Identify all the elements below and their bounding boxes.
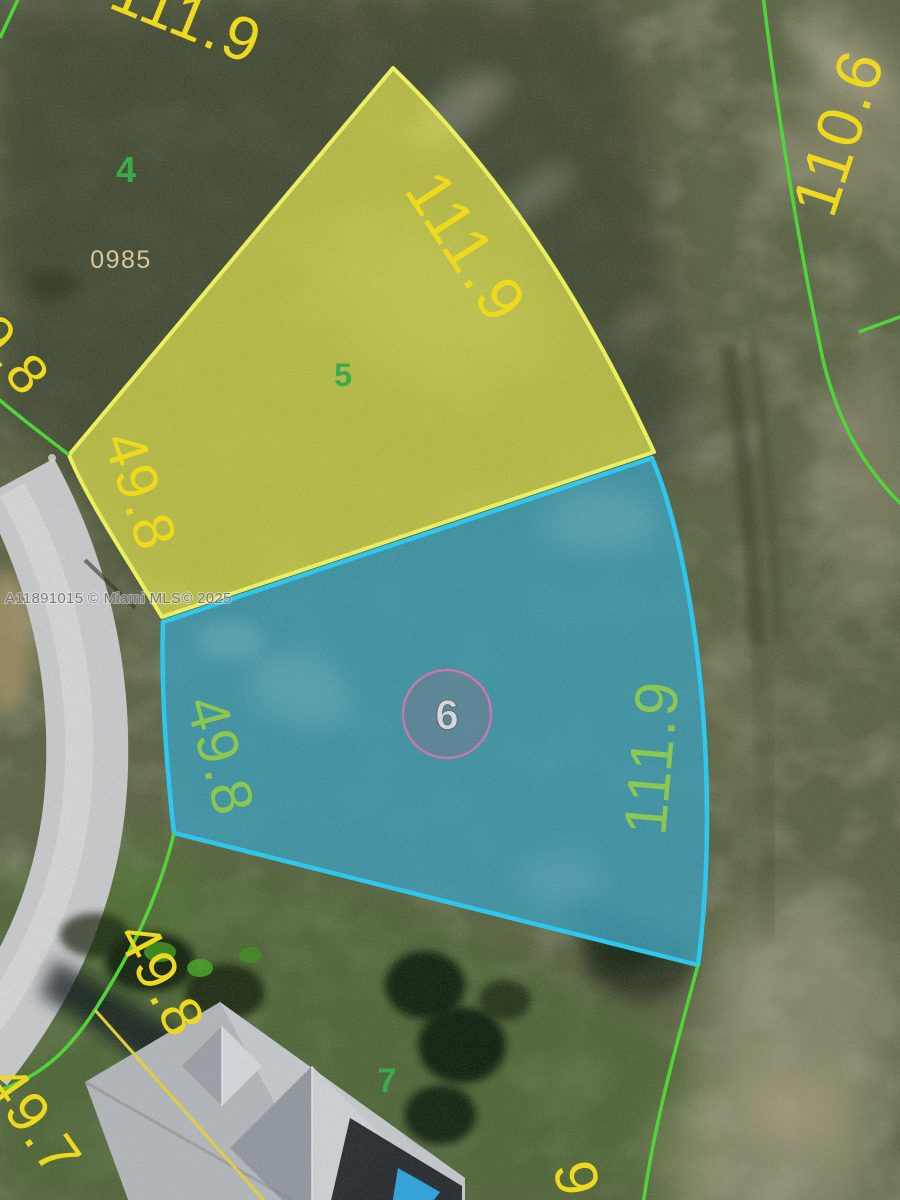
lot7-number: 7 [378,1062,397,1100]
lot4-plat-code: 0985 [90,246,152,274]
dim-lot6-side: 111.9 [611,676,691,837]
lot4-number: 4 [116,149,136,190]
mls-watermark: A11891015 © Miami MLS© 2025 [5,590,232,607]
parcel-map-canvas: 6 111.9 111.9 49.8 9.8 110.6 49.8 111.9 … [0,0,900,1200]
lot5-number: 5 [334,357,352,393]
aerial-parcel-map: 6 111.9 111.9 49.8 9.8 110.6 49.8 111.9 … [0,0,900,1200]
